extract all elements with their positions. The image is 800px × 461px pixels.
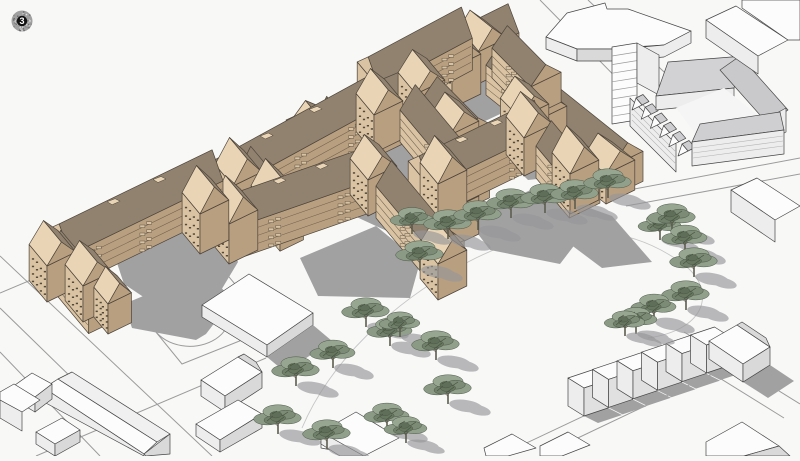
svg-text:3: 3 <box>19 16 24 26</box>
